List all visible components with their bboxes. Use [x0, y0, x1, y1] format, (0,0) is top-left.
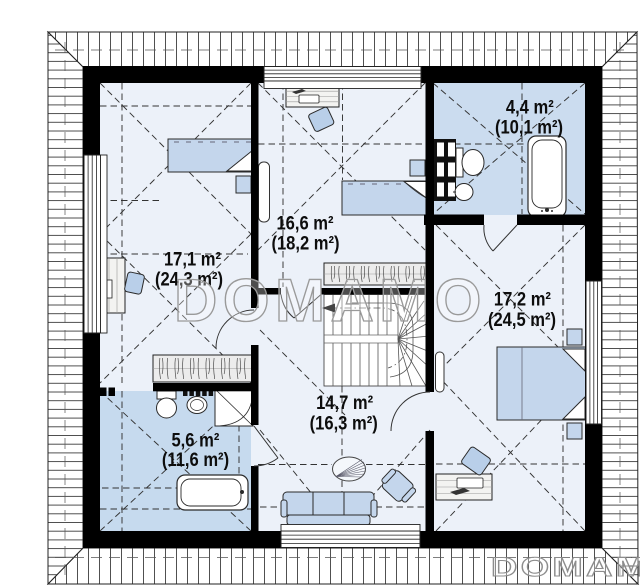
svg-text:5,6 m²: 5,6 m² — [171, 429, 219, 451]
svg-text:(16,3 m²): (16,3 m²) — [310, 412, 378, 434]
svg-text:(18,2 m²): (18,2 m²) — [271, 232, 339, 254]
svg-text:17,2 m²: 17,2 m² — [494, 288, 551, 310]
svg-text:14,7 m²: 14,7 m² — [316, 392, 373, 414]
svg-text:16,6 m²: 16,6 m² — [276, 212, 333, 234]
svg-text:(11,6 m²): (11,6 m²) — [162, 449, 229, 471]
svg-text:(24,5 m²): (24,5 m²) — [488, 309, 556, 331]
svg-text:4,4 m²: 4,4 m² — [506, 96, 554, 118]
svg-text:DOMAMO: DOMAMO — [174, 267, 487, 334]
svg-text:DOMAMO: DOMAMO — [491, 552, 640, 582]
svg-text:(10,1 m²): (10,1 m²) — [495, 116, 563, 138]
